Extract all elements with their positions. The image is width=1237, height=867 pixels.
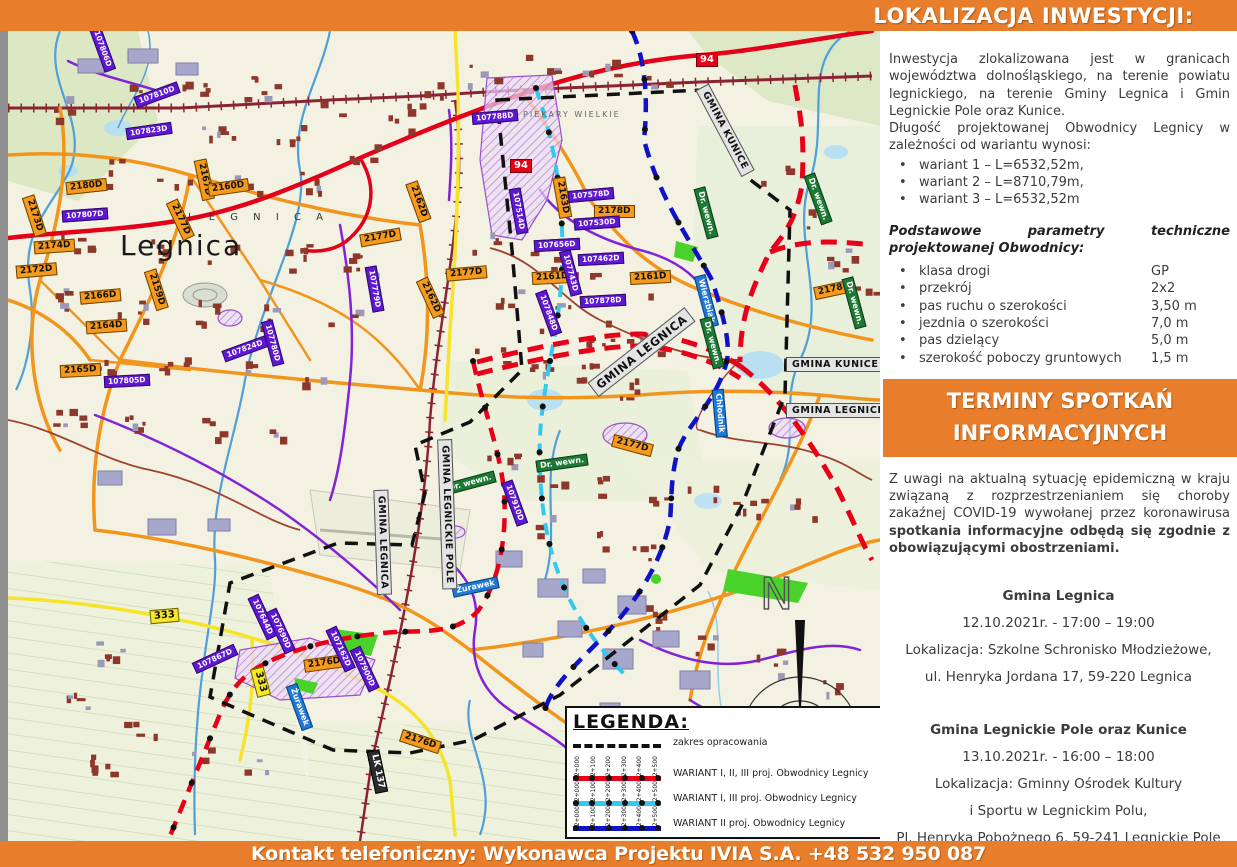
contact-text: Kontakt telefoniczny: Wykonawca Projektu… [251,843,986,865]
road-badge-purple: 107878D [580,294,626,308]
road-badge-purple: 107900D [350,646,380,692]
left-edge-strip [0,31,8,841]
road-badge: 2161D [630,270,671,285]
gmina-label: GMINA LEGNICA [588,307,696,397]
contact-bar: Kontakt telefoniczny: Wykonawca Projektu… [0,841,1237,867]
road-badge-purple: 107910D [502,479,528,526]
legend-title: LEGENDA: [573,711,875,733]
internal-road-badge: Dr. wewn. [842,276,867,330]
legend-blue-line [573,826,661,831]
road-badge-purple: 107779D [365,265,384,312]
meetings-header: TERMINY SPOTKAŃ INFORMACYJNYCH [883,379,1237,457]
road-badge-purple: 107806D [90,31,116,72]
road-badge: 2173D [22,194,47,237]
road-badge: 2160D [207,178,249,197]
road-badge-purple: 107824D [221,336,268,362]
road-badge: 2164D [86,319,127,335]
road-badge: 2180D [65,178,107,195]
road-badge: 2177D [446,265,488,281]
road-badge: 2165D [60,363,101,378]
road-badge-purple: 107807D [62,207,108,222]
covid-paragraph: Z uwagi na aktualną sytuację epidemiczną… [880,457,1237,557]
meeting-location: Lokalizacja: Szkolne Schronisko Młodzież… [880,637,1237,664]
road-badge-94: 94 [696,53,718,67]
legend-dashed-line [573,744,661,748]
city-label-small: L E G N I C A [188,212,329,223]
meeting-legnica: Gmina Legnica 12.10.2021r. - 17:00 – 19:… [880,583,1237,691]
road-badge-333: 333 [250,666,271,698]
gmina-label: GMINA KUNICE [786,357,880,372]
road-badge-purple: 107656D [534,238,580,252]
road-badge: 2159D [144,268,169,311]
variant-list: wariant 1 – L=6532,52m, wariant 2 – L=87… [889,157,1230,209]
intro-paragraph: Inwestycja zlokalizowana jest w granicac… [889,51,1230,120]
gmina-label: GMINA LEGNICKIE POLE [437,439,457,590]
stream-badge: Żurawek [451,576,499,598]
north-label: N [760,569,793,620]
district-label: PIEKARY WIELKIE [523,110,621,119]
stream-badge: Chłodnik [712,389,728,437]
info-panel: Inwestycja zlokalizowana jest w granicac… [880,31,1237,841]
chainage-labels: 2+0002+1002+2002+3002+4002+500 [573,758,661,776]
variant-item: wariant 2 – L=8710,79m, [889,174,1230,191]
road-badge-94: 94 [510,159,532,173]
parameter-row: klasa drogiGP [889,263,1230,280]
road-badge: 2162D [405,180,431,223]
meeting-date: 13.10.2021r. - 16:00 – 18:00 [880,744,1237,771]
legend: LEGENDA: zakres opracowania 2+0002+1002+… [565,706,880,839]
meeting-address: ul. Henryka Jordana 17, 59-220 Legnica [880,664,1237,691]
road-badge: 2177D [359,228,401,248]
legend-row: zakres opracowania [573,737,875,756]
gmina-label: GMINA KUNICE [695,84,754,178]
legend-cyan-line [573,801,661,806]
internal-road-badge: Dr. wewn. [694,186,719,240]
parameters-list: klasa drogiGP przekrój2x2 pas ruchu o sz… [889,263,1230,367]
meeting-name: Gmina Legnica [880,583,1237,610]
road-badge-purple: 107848D [536,289,562,336]
parameters-heading: Podstawowe parametry techniczne projekto… [889,223,1230,258]
meeting-location: Lokalizacja: Gminny Ośrodek Kultury [880,771,1237,798]
road-badge-purple: 107578D [568,187,614,202]
poster: LOKALIZACJA INWESTYCJI: [0,0,1237,867]
road-badge: 2176D [399,729,442,754]
internal-road-badge: Dr. wewn. [804,172,833,225]
railway-badge: LK 137 [367,749,389,793]
page-title: LOKALIZACJA INWESTYCJI: [830,0,1237,31]
length-paragraph: Długość projektowanej Obwodnicy Legnicy … [889,120,1230,155]
parameter-row: pas ruchu o szerokości3,50 m [889,298,1230,315]
variant-item: wariant 1 – L=6532,52m, [889,157,1230,174]
legend-label: WARIANT II proj. Obwodnicy Legnicy [673,818,845,831]
road-badge-purple: 107823D [125,122,172,140]
legend-label: WARIANT I, III proj. Obwodnicy Legnicy [673,793,857,806]
legend-red-line [573,776,661,781]
parameter-row: przekrój2x2 [889,280,1230,297]
parameter-row: jezdnia o szerokości7,0 m [889,315,1230,332]
chainage-labels: 2+0002+1002+2002+3002+4002+500 [573,808,661,826]
road-badge: 2166D [80,288,122,304]
internal-road-badge: Dr. wewn. [700,316,725,370]
road-badge: 2177D [611,434,654,457]
stream-badge: Żurawek [286,683,313,731]
meeting-date: 12.10.2021r. - 17:00 – 19:00 [880,610,1237,637]
road-badge-purple: 107530D [574,215,620,230]
meeting-name: Gmina Legnickie Pole oraz Kunice [880,717,1237,744]
road-badge: 2174D [34,239,75,255]
road-badge: 2172D [16,262,58,278]
legend-row: 2+0002+1002+2002+3002+4002+500 WARIANT I… [573,808,875,831]
road-badge-purple: 107462D [578,252,624,266]
parameter-row: szerokość poboczy gruntowych1,5 m [889,350,1230,367]
internal-road-badge: Dr. wewn. [535,453,588,472]
road-badge-purple: 107805D [104,374,150,388]
chainage-labels: 2+0002+1002+2002+3002+4002+500 [573,783,661,801]
road-badge-purple: 107867D [192,644,238,674]
variant-item: wariant 3 – L=6532,52m [889,191,1230,208]
meeting-legnickie-pole: Gmina Legnickie Pole oraz Kunice 13.10.2… [880,717,1237,852]
legend-row: 2+0002+1002+2002+3002+4002+500 WARIANT I… [573,758,875,781]
legend-row: 2+0002+1002+2002+3002+4002+500 WARIANT I… [573,783,875,806]
meeting-location2: i Sportu w Legnickim Polu, [880,798,1237,825]
road-badge: 2162D [416,276,445,318]
parameter-row: pas dzielący5,0 m [889,332,1230,349]
legend-label: WARIANT I, II, III proj. Obwodnicy Legni… [673,768,868,781]
gmina-label: GMINA LEGNICA [373,490,392,596]
map: L E G N I C A Legnica PIEKARY WIELKIE N … [8,31,880,841]
road-badge-purple: 107514D [509,187,528,234]
road-badge-333: 333 [149,608,179,624]
gmina-label: GMINA LEGNICKIE POLE [786,403,880,418]
legend-label: zakres opracowania [673,737,768,756]
road-badge-purple: 107788D [472,109,518,124]
road-badge-purple: 107810D [133,82,180,108]
